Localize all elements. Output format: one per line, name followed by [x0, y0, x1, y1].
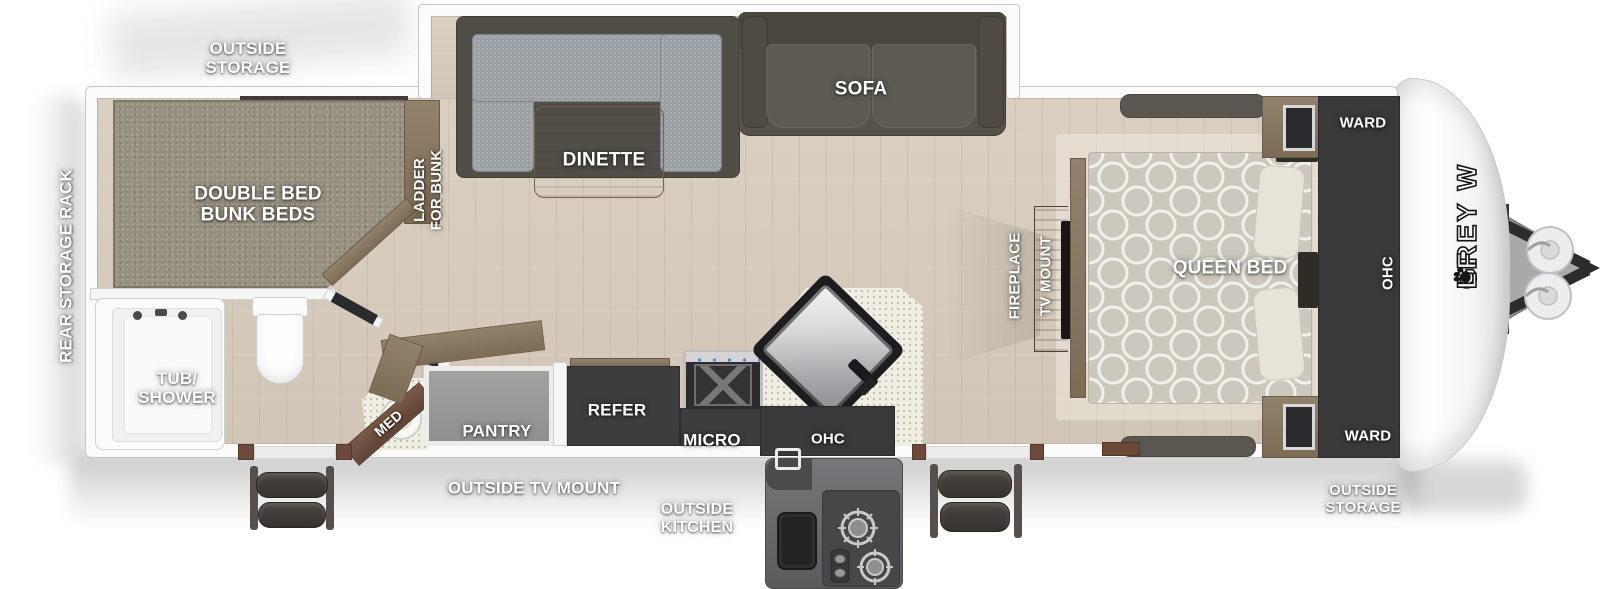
door-jamb	[238, 444, 254, 460]
door-jamb	[336, 444, 352, 460]
label-refer: REFER	[588, 400, 647, 419]
entry-step	[256, 472, 328, 498]
label-outside-storage-front: OUTSIDE STORAGE	[205, 39, 290, 77]
label-queen-bed: QUEEN BED	[1173, 257, 1288, 278]
label-ohc-kitchen: OHC	[811, 432, 845, 449]
entry-door-main	[254, 446, 336, 459]
nightstand-mirror	[1283, 404, 1315, 450]
window-seat	[1120, 436, 1256, 457]
floorplan-canvas: MED	[0, 0, 1600, 589]
label-outside-storage-rear: OUTSIDE STORAGE	[1325, 483, 1400, 517]
oven-window	[694, 364, 752, 406]
dinette-bench-right	[660, 34, 722, 172]
door-jamb	[912, 444, 926, 460]
label-micro: MICRO	[683, 430, 741, 449]
tub-faucet-icon	[155, 309, 167, 316]
step-rail	[930, 464, 938, 538]
toilet	[256, 314, 304, 384]
label-tv-mount: TV MOUNT	[1039, 236, 1056, 316]
sofa-arm	[978, 16, 1004, 128]
label-outside-kitchen: OUTSIDE KITCHEN	[661, 501, 734, 537]
door-jamb	[1030, 444, 1044, 460]
label-tub-shower: TUB/ SHOWER	[138, 369, 216, 407]
entry-door-bedroom	[926, 446, 1030, 459]
entry-step	[940, 502, 1010, 532]
outside-kitchen-latch	[775, 448, 801, 470]
step-rail	[1014, 464, 1022, 538]
label-ward-bottom: WARD	[1345, 429, 1392, 446]
range-burners	[686, 352, 760, 362]
shower-head-icon	[178, 311, 187, 320]
nightstand-mirror	[1283, 105, 1315, 151]
label-ohc-bedroom: OHC	[1381, 256, 1398, 290]
label-fireplace: FIREPLACE	[1008, 233, 1025, 320]
floor-register	[1102, 442, 1140, 456]
sofa-arm	[742, 16, 768, 128]
step-rail	[250, 466, 258, 530]
label-ward-top: WARD	[1340, 116, 1387, 133]
label-dinette: DINETTE	[563, 149, 646, 170]
pillow	[1252, 164, 1306, 260]
step-rail	[326, 466, 334, 530]
label-outside-tv-mount: OUTSIDE TV MOUNT	[448, 478, 620, 497]
outside-burners	[765, 458, 903, 589]
bed-rail	[1070, 158, 1086, 398]
label-pantry: PANTRY	[462, 421, 531, 440]
pantry-wall	[553, 362, 567, 446]
shower-head-icon	[133, 311, 142, 320]
window-seat	[1120, 94, 1266, 118]
front-cap	[1390, 78, 1510, 472]
label-bunk-beds: DOUBLE BED BUNK BEDS	[194, 184, 322, 227]
label-rear-storage-rack: REAR STORAGE RACK	[56, 169, 75, 363]
entry-step	[258, 502, 326, 528]
label-ladder: LADDER FOR BUNK	[412, 150, 446, 231]
label-sofa: SOFA	[835, 78, 888, 99]
brand-text-2: LF	[1452, 250, 1483, 289]
bed-frame-bracket	[1298, 252, 1318, 308]
entry-step	[938, 470, 1012, 498]
